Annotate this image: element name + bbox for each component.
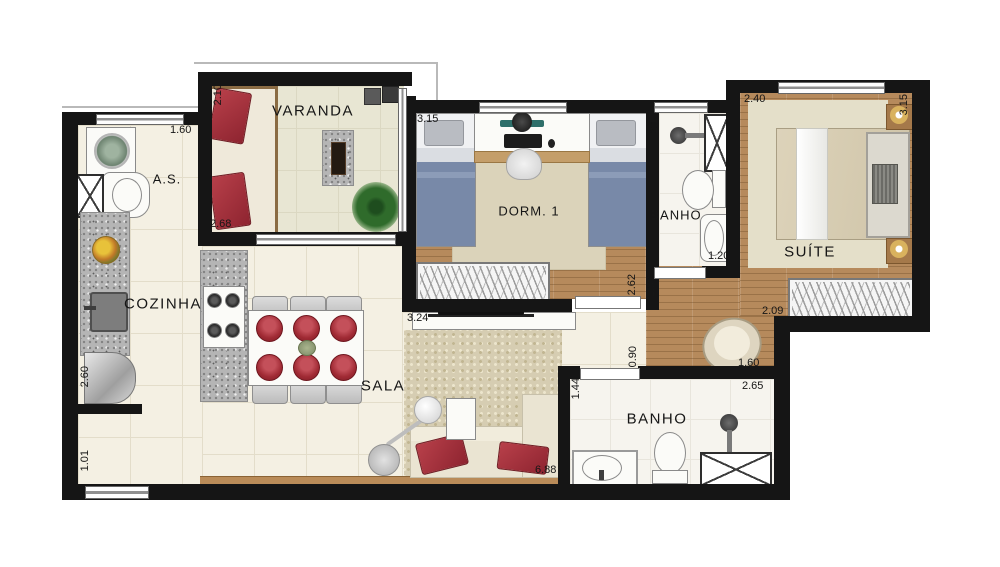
room-label-as: A.S.	[153, 172, 182, 187]
toilet-tank	[712, 170, 726, 208]
fridge	[84, 352, 136, 404]
window-kitchen	[85, 486, 149, 499]
exterior-trim	[194, 62, 438, 64]
fruit-bowl	[92, 236, 120, 264]
side-table	[446, 398, 476, 440]
dim-hall-width: 1.60	[738, 357, 759, 369]
dim-entry-left: 1.01	[79, 450, 91, 471]
shower-arm	[727, 430, 732, 452]
bedroom1-wardrobe	[416, 262, 550, 304]
dim-as-top: 1.60	[170, 124, 191, 136]
ceiling-spot	[364, 88, 381, 105]
toilet-bowl	[654, 432, 686, 474]
dim-suite-top: 2.40	[744, 93, 765, 105]
wall-bath2-left	[558, 366, 570, 496]
room-label-cozinha: COZINHA	[124, 296, 202, 313]
cooktop	[203, 286, 245, 348]
door-bath2	[580, 368, 640, 380]
toilet-tank	[652, 470, 688, 484]
wall-suite-right	[912, 80, 930, 332]
laptop	[504, 134, 542, 148]
desk-chair	[506, 148, 542, 180]
room-label-suite: SUÍTE	[784, 244, 836, 261]
dim-dorm1-top: 3.15	[417, 113, 438, 125]
exterior-trim	[62, 106, 212, 108]
dim-cozinha-left: 2.60	[79, 366, 91, 387]
dim-hall-upper: 1.37	[645, 276, 657, 297]
nightstand-lamp	[890, 240, 908, 258]
room-label-dorm1: DORM. 1	[498, 204, 559, 219]
vanity-faucet	[599, 470, 604, 480]
kitchen-sink	[90, 292, 128, 332]
kitchen-sink-faucet	[84, 306, 96, 310]
dim-banho1-left: 2.15	[648, 112, 660, 133]
dim-dorm1-bottom: 3.24	[407, 312, 428, 324]
dim-banho2-left: 1.44	[570, 378, 582, 399]
wall-kitchen-stub	[62, 404, 142, 414]
laundry-sink-basin	[112, 178, 142, 212]
place-setting	[330, 315, 357, 342]
floor-plan: 1.60 2.10 2.68 3.15 2.62 3.24 2.15 1.20 …	[0, 0, 1000, 567]
dim-sala-bottom: 6.88	[535, 464, 556, 476]
window-bedroom1	[479, 102, 567, 113]
wall-balcony-top	[198, 72, 412, 86]
ceiling-spot	[382, 86, 399, 103]
shower-box	[700, 452, 772, 487]
wall-bottom	[62, 484, 790, 500]
place-setting	[256, 354, 283, 381]
dim-banho1-bottom: 1.20	[708, 250, 729, 262]
window-suite	[778, 82, 885, 94]
mouse	[548, 139, 555, 148]
place-setting	[330, 354, 357, 381]
potted-palm	[352, 182, 400, 232]
desk-fan	[512, 112, 532, 132]
wall-left	[62, 112, 78, 500]
place-setting	[293, 354, 320, 381]
bed-pillow	[596, 120, 636, 146]
room-label-varanda: VARANDA	[272, 103, 354, 120]
suite-bed-tray	[872, 164, 898, 204]
grill-pit	[331, 142, 346, 175]
place-setting	[256, 315, 283, 342]
place-setting	[293, 315, 320, 342]
burner	[207, 323, 222, 338]
toilet-bowl	[682, 170, 714, 210]
room-label-banho1: BANHO	[650, 208, 701, 223]
door-bedroom1	[575, 296, 641, 309]
wall-suite-bottom	[776, 316, 930, 332]
dim-dorm1-right: 2.62	[626, 274, 638, 295]
floor-lamp-base	[368, 444, 400, 476]
wall-bath2-top-b	[638, 366, 790, 379]
window-bath1	[654, 102, 708, 113]
burner	[225, 323, 240, 338]
room-label-sala: SALA	[361, 378, 405, 395]
burner	[207, 293, 222, 308]
wall-bath1-suite-divider	[726, 80, 740, 272]
floor-lamp-shade	[414, 396, 442, 424]
dim-suite-right: 3.15	[898, 94, 910, 115]
door-bath1	[654, 267, 706, 279]
wall-bath1-bottom-b	[702, 266, 740, 278]
suite-bed-runner	[796, 128, 828, 240]
table-centerpiece	[298, 340, 316, 356]
balcony-glass-rail	[398, 88, 407, 232]
suite-wardrobe	[788, 278, 914, 320]
dim-hall-lower: 0.90	[627, 346, 639, 367]
exterior-trim	[436, 62, 438, 104]
dim-varanda-left: 2.10	[212, 84, 224, 105]
wall-bath2-right	[774, 316, 790, 500]
dim-varanda-bottom: 2.68	[210, 218, 231, 230]
hall-armchair-seat	[714, 326, 750, 360]
washing-machine-door	[94, 133, 130, 169]
room-label-banho2: BANHO	[627, 411, 688, 428]
kitchen-counter	[80, 212, 130, 356]
dim-suite-bottom: 2.09	[762, 305, 783, 317]
burner	[225, 293, 240, 308]
window-balcony-door	[256, 234, 396, 245]
wall-bedroom1-bottom	[402, 299, 572, 312]
dim-banho2-top: 2.65	[742, 380, 763, 392]
